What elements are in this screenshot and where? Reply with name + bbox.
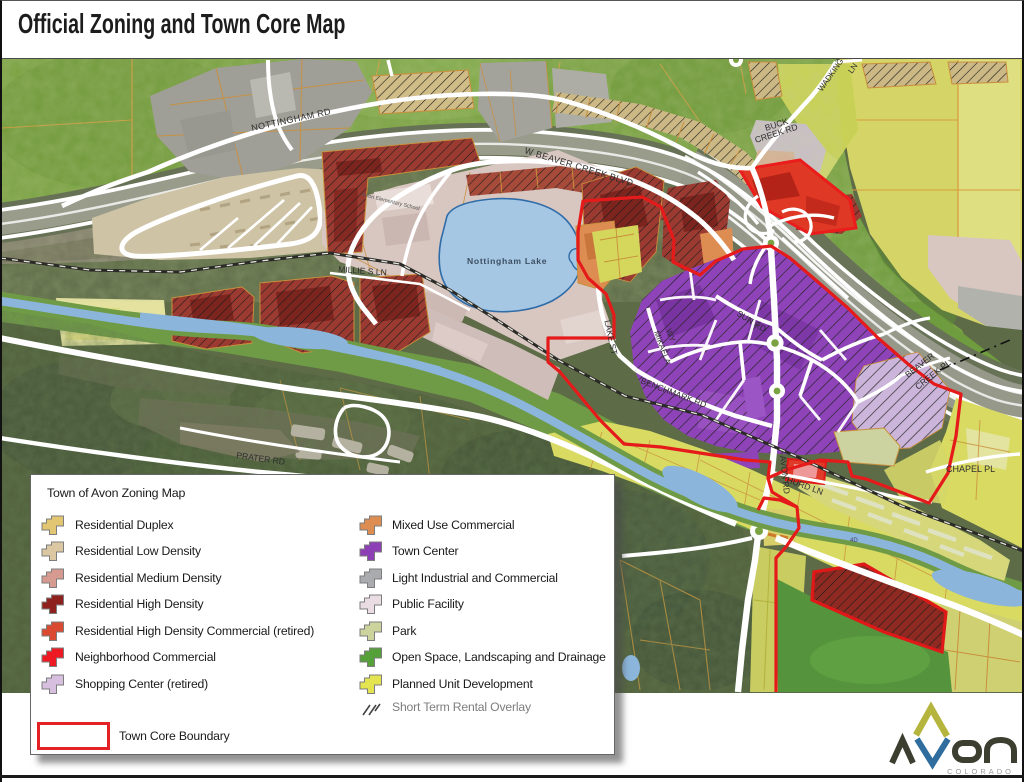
svg-text:Nottingham Lake: Nottingham Lake <box>467 256 547 266</box>
svg-text:4D: 4D <box>850 538 858 544</box>
svg-text:CHAPEL PL: CHAPEL PL <box>946 464 995 474</box>
